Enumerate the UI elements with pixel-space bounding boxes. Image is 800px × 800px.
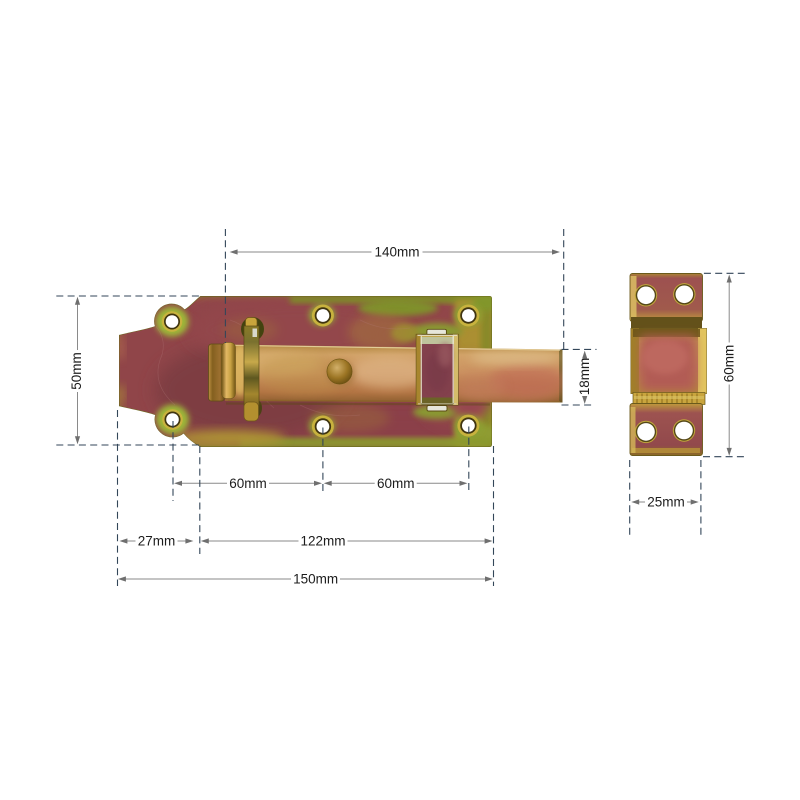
svg-text:50mm: 50mm xyxy=(69,352,84,390)
svg-text:27mm: 27mm xyxy=(138,534,176,549)
svg-text:60mm: 60mm xyxy=(721,345,736,383)
svg-text:60mm: 60mm xyxy=(377,476,415,491)
svg-text:25mm: 25mm xyxy=(647,495,685,510)
svg-text:122mm: 122mm xyxy=(300,534,345,549)
svg-text:18mm: 18mm xyxy=(577,358,592,396)
svg-text:140mm: 140mm xyxy=(374,245,419,260)
svg-text:150mm: 150mm xyxy=(293,572,338,587)
svg-text:60mm: 60mm xyxy=(229,476,267,491)
